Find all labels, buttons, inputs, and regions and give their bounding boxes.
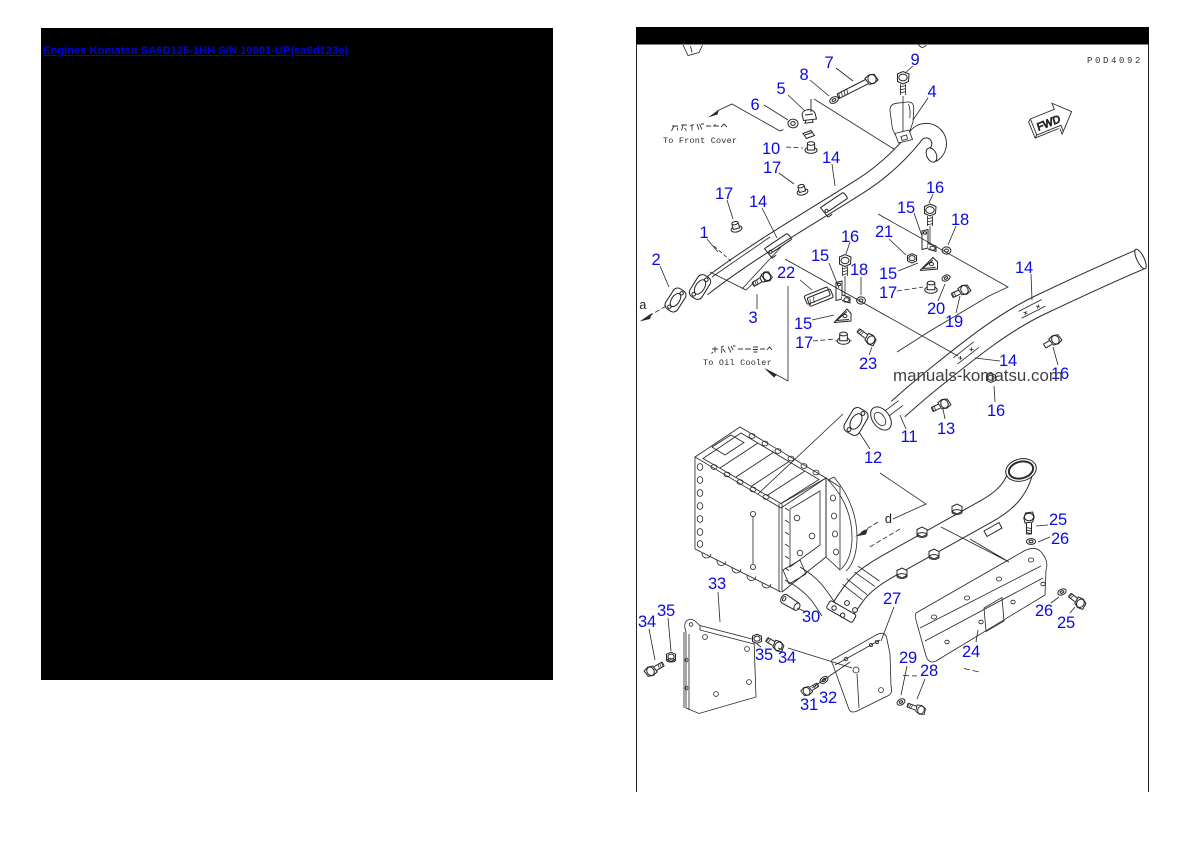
svg-text:7: 7 (825, 54, 834, 72)
svg-text:15: 15 (794, 315, 812, 333)
svg-text:14: 14 (749, 193, 767, 211)
svg-text:8: 8 (800, 66, 809, 84)
svg-text:2: 2 (652, 251, 661, 269)
svg-text:35: 35 (755, 646, 773, 664)
svg-text:35: 35 (657, 602, 675, 620)
svg-text:16: 16 (841, 228, 859, 246)
svg-text:19: 19 (945, 313, 963, 331)
svg-text:16: 16 (987, 402, 1005, 420)
svg-text:22: 22 (777, 264, 795, 282)
svg-text:manuals-komatsu.com: manuals-komatsu.com (893, 366, 1063, 385)
svg-text:29: 29 (899, 649, 917, 667)
svg-text:31: 31 (800, 696, 818, 714)
svg-text:17: 17 (795, 334, 813, 352)
svg-text:34: 34 (638, 613, 656, 631)
svg-text:To Oil Cooler: To Oil Cooler (703, 358, 772, 368)
svg-text:d: d (885, 512, 893, 527)
svg-text:26: 26 (1051, 530, 1069, 548)
svg-text:4: 4 (928, 83, 937, 101)
svg-text:25: 25 (1049, 511, 1067, 529)
svg-text:20: 20 (927, 300, 945, 318)
svg-text:9: 9 (911, 51, 920, 69)
svg-text:17: 17 (763, 159, 781, 177)
svg-text:27: 27 (883, 590, 901, 608)
svg-text:14: 14 (822, 149, 840, 167)
svg-text:26: 26 (1035, 602, 1053, 620)
svg-text:28: 28 (920, 662, 938, 680)
svg-text:30: 30 (802, 608, 820, 626)
svg-text:18: 18 (850, 261, 868, 279)
svg-text:12: 12 (864, 449, 882, 467)
svg-text:24: 24 (962, 643, 980, 661)
svg-text:13: 13 (937, 420, 955, 438)
svg-text:33: 33 (708, 575, 726, 593)
svg-text:15: 15 (897, 199, 915, 217)
svg-text:a: a (639, 298, 647, 313)
svg-text:17: 17 (715, 185, 733, 203)
svg-text:18: 18 (951, 211, 969, 229)
svg-text:P0D4092: P0D4092 (1087, 56, 1143, 66)
svg-text:3: 3 (749, 309, 758, 327)
svg-text:14: 14 (1015, 259, 1033, 277)
svg-text:15: 15 (811, 247, 829, 265)
svg-text:23: 23 (859, 355, 877, 373)
svg-text:16: 16 (926, 179, 944, 197)
svg-text:21: 21 (875, 223, 893, 241)
svg-text:11: 11 (901, 428, 918, 446)
svg-text:5: 5 (777, 80, 786, 98)
svg-text:34: 34 (778, 649, 796, 667)
svg-text:To Front Cover: To Front Cover (663, 136, 737, 146)
svg-text:10: 10 (762, 140, 780, 158)
svg-text:17: 17 (879, 284, 897, 302)
svg-text:15: 15 (879, 265, 897, 283)
svg-text:6: 6 (751, 96, 760, 114)
svg-text:1: 1 (700, 224, 709, 242)
svg-text:32: 32 (819, 689, 837, 707)
svg-text:FWD: FWD (1036, 113, 1062, 134)
svg-text:25: 25 (1057, 614, 1075, 632)
